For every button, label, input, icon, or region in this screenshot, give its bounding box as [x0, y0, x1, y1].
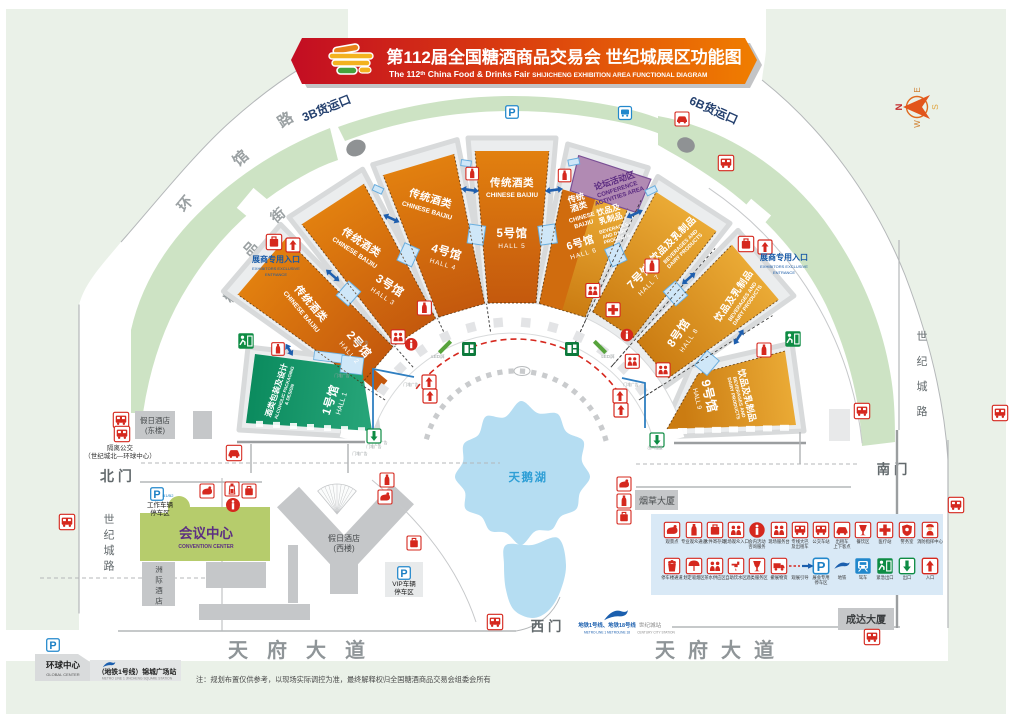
svg-text:路: 路: [917, 405, 928, 418]
svg-text:洲: 洲: [155, 565, 163, 574]
svg-text:出口通道: 出口通道: [647, 445, 662, 450]
svg-text:P: P: [153, 489, 160, 501]
svg-text:停车区: 停车区: [815, 579, 829, 586]
svg-text:医疗站: 医疗站: [879, 538, 893, 545]
svg-text:P: P: [49, 640, 56, 652]
svg-text:世: 世: [917, 330, 928, 343]
svg-text:5号馆: 5号馆: [497, 226, 528, 240]
svg-text:天府大道: 天府大道: [228, 638, 384, 662]
svg-text:假日酒店: 假日酒店: [140, 415, 170, 425]
svg-text:P: P: [400, 568, 407, 580]
svg-text:停车区: 停车区: [150, 508, 170, 517]
svg-text:VIP车辆: VIP车辆: [392, 579, 416, 588]
svg-text:（地铁1号线）锦城广场站: （地铁1号线）锦城广场站: [98, 667, 177, 676]
svg-text:划定吸烟区: 划定吸烟区: [683, 574, 705, 581]
svg-text:驾车: 驾车: [859, 574, 868, 581]
svg-text:南 门: 南 门: [877, 461, 908, 477]
svg-text:咨询服务: 咨询服务: [748, 543, 766, 550]
svg-text:世纪城站: 世纪城站: [639, 621, 662, 629]
svg-text:W: W: [913, 120, 922, 128]
svg-text:门堆广告: 门堆广告: [353, 340, 368, 345]
svg-text:注：规划布置仅供参考，以现场实际调控为准，最终解释权归全国糖: 注：规划布置仅供参考，以现场实际调控为准，最终解释权归全国糖酒商品交易会组委会所…: [196, 675, 491, 684]
svg-text:际: 际: [155, 576, 163, 585]
svg-text:CONVENTION CENTER: CONVENTION CENTER: [178, 544, 234, 550]
svg-text:P: P: [817, 559, 826, 574]
svg-text:酒: 酒: [155, 586, 163, 595]
svg-text:工作车辆: 工作车辆: [147, 500, 174, 509]
svg-text:停车区: 停车区: [394, 587, 414, 596]
svg-text:出口: 出口: [903, 574, 912, 581]
svg-text:及出租车: 及出租车: [791, 543, 809, 550]
svg-text:门堆广告: 门堆广告: [403, 382, 418, 387]
svg-text:S: S: [930, 104, 940, 110]
svg-text:世: 世: [104, 513, 115, 526]
svg-text:现场观众入口: 现场观众入口: [723, 538, 749, 545]
svg-text:烟草大厦: 烟草大厦: [639, 495, 675, 506]
svg-text:CHINESE BAIJIU: CHINESE BAIJIU: [486, 192, 538, 199]
svg-text:紧急出口: 紧急出口: [876, 574, 893, 581]
svg-text:入口: 入口: [926, 575, 935, 580]
svg-text:消防指挥中心: 消防指挥中心: [917, 538, 943, 545]
svg-text:展商专用入口: 展商专用入口: [251, 254, 300, 264]
svg-text:上下客点: 上下客点: [833, 543, 851, 550]
svg-text:传统酒类: 传统酒类: [489, 176, 534, 189]
svg-text:门堆广告: 门堆广告: [366, 444, 381, 449]
svg-text:停车楼通道: 停车楼通道: [661, 574, 683, 581]
svg-text:门堆广告: 门堆广告: [334, 373, 349, 378]
svg-text:现场服务台: 现场服务台: [768, 538, 789, 545]
svg-text:（世纪城北—环球中心）: （世纪城北—环球中心）: [84, 451, 156, 460]
svg-text:B1/B2: B1/B2: [163, 493, 175, 498]
svg-text:第112届全国糖酒商品交易会 世纪城展区功能图: 第112届全国糖酒商品交易会 世纪城展区功能图: [386, 47, 741, 67]
svg-text:E: E: [913, 87, 922, 92]
svg-text:北 门: 北 门: [100, 468, 132, 484]
svg-text:店: 店: [155, 596, 163, 606]
svg-text:展商专用入口: 展商专用入口: [759, 252, 808, 262]
svg-text:N: N: [894, 103, 905, 110]
svg-text:地铁1号线、地铁18号线: 地铁1号线、地铁18号线: [578, 621, 636, 629]
svg-text:P: P: [508, 107, 515, 119]
svg-text:纪: 纪: [104, 529, 115, 542]
svg-text:纪: 纪: [917, 355, 928, 368]
svg-text:ENTRANCE: ENTRANCE: [773, 270, 795, 275]
svg-text:地铁: 地铁: [838, 574, 847, 581]
svg-text:天府大道: 天府大道: [655, 638, 787, 662]
svg-text:HALL 5: HALL 5: [498, 243, 525, 250]
svg-text:警务室: 警务室: [901, 538, 915, 545]
svg-text:西 门: 西 门: [531, 618, 562, 634]
svg-text:环球中心: 环球中心: [46, 660, 81, 670]
svg-text:(西楼): (西楼): [333, 543, 355, 553]
svg-text:自助饮水区: 自助饮水区: [725, 574, 747, 581]
svg-text:观展引导: 观展引导: [791, 574, 809, 581]
svg-text:GLOBAL CENTER: GLOBAL CENTER: [46, 672, 80, 677]
svg-text:METRO LINE 1 JINCHENG SQUARE: METRO LINE 1 JINCHENG SQUARE STATION: [102, 677, 173, 681]
svg-text:城: 城: [917, 380, 928, 393]
svg-text:天鹅湖: 天鹅湖: [509, 470, 548, 484]
svg-text:会议中心: 会议中心: [179, 525, 233, 541]
svg-text:撤展物资: 撤展物资: [770, 574, 788, 581]
svg-text:茶水供应区: 茶水供应区: [704, 574, 726, 581]
svg-text:EXHIBITORS EXCLUSIVE: EXHIBITORS EXCLUSIVE: [760, 264, 808, 269]
svg-text:CENTURY CITY STATION: CENTURY CITY STATION: [637, 631, 675, 635]
svg-text:路: 路: [104, 560, 115, 573]
svg-text:假日酒店: 假日酒店: [328, 533, 360, 543]
svg-text:城: 城: [104, 544, 115, 557]
svg-text:METRO LINE 1 METROLINE 18: METRO LINE 1 METROLINE 18: [584, 631, 630, 635]
svg-text:ENTRANCE: ENTRANCE: [265, 272, 287, 277]
svg-text:门堆广告: 门堆广告: [352, 451, 367, 456]
svg-text:餐饮区: 餐饮区: [857, 538, 871, 545]
svg-text:公交车站: 公交车站: [812, 538, 830, 545]
svg-text:成达大厦: 成达大厦: [846, 613, 887, 626]
svg-text:(东楼): (东楼): [145, 425, 165, 435]
svg-text:酒类服务区: 酒类服务区: [746, 574, 768, 581]
svg-text:门堆广告: 门堆广告: [623, 382, 638, 387]
svg-text:EXHIBITORS EXCLUSIVE: EXHIBITORS EXCLUSIVE: [252, 266, 300, 271]
svg-text:隔离公交: 隔离公交: [107, 443, 134, 452]
